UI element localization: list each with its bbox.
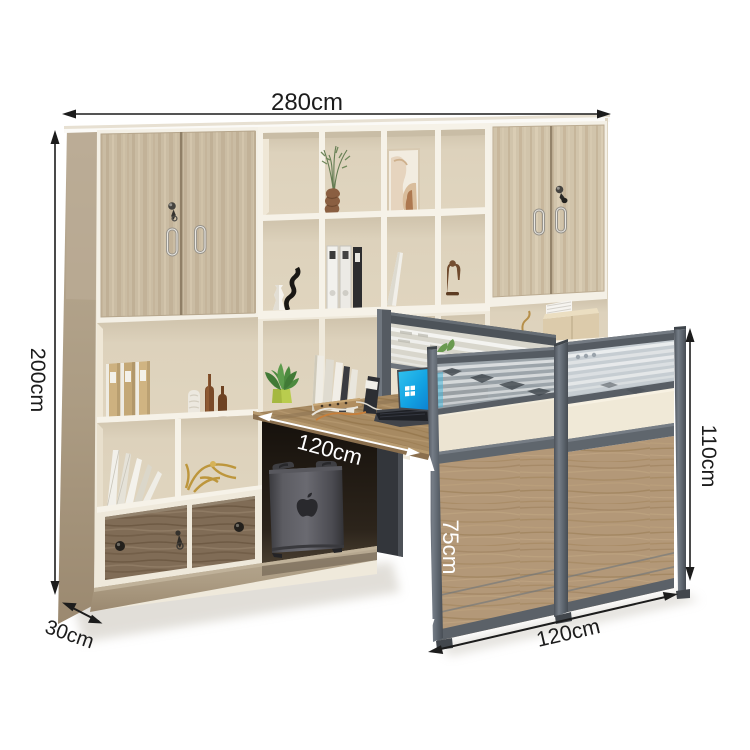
svg-text:200cm: 200cm	[26, 348, 50, 413]
svg-text:280cm: 280cm	[271, 89, 343, 116]
svg-text:75cm: 75cm	[438, 519, 463, 574]
svg-text:110cm: 110cm	[697, 425, 721, 488]
